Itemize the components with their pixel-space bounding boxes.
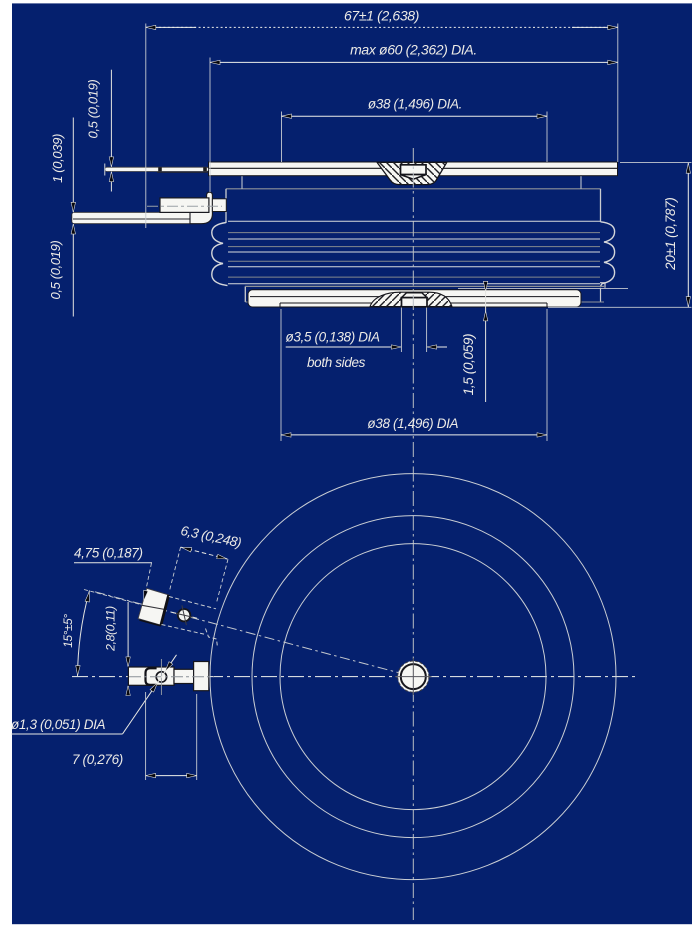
svg-text:7 (0,276): 7 (0,276) [72,752,123,767]
svg-text:67±1 (2,638): 67±1 (2,638) [344,8,419,24]
svg-text:ø38 (1,496) DIA.: ø38 (1,496) DIA. [368,97,462,112]
svg-text:both sides: both sides [307,355,366,370]
svg-text:15°±5°: 15°±5° [61,614,75,648]
svg-text:2,8(0,11): 2,8(0,11) [104,606,118,652]
svg-text:4,75 (0,187): 4,75 (0,187) [74,546,143,561]
svg-text:ø3,5 (0,138) DIA: ø3,5 (0,138) DIA [286,330,381,345]
svg-text:0,5 (0,019): 0,5 (0,019) [86,79,101,138]
svg-text:ø38 (1,496) DIA: ø38 (1,496) DIA [367,416,458,431]
svg-text:0,5 (0,019): 0,5 (0,019) [48,240,63,299]
svg-text:max ø60 (2,362) DIA.: max ø60 (2,362) DIA. [350,42,477,58]
svg-text:1,5 (0,059): 1,5 (0,059) [461,334,476,395]
svg-text:ø1,3 (0,051) DIA: ø1,3 (0,051) DIA [11,717,106,732]
svg-text:20±1 (0,787): 20±1 (0,787) [663,198,678,271]
svg-text:1 (0,039): 1 (0,039) [50,134,65,183]
